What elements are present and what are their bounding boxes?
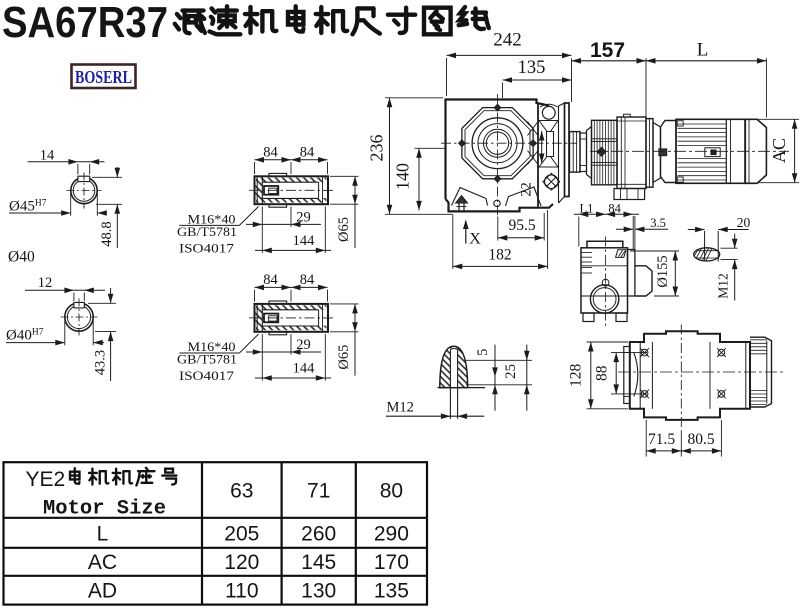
svg-text:120: 120 [224,551,259,574]
svg-text:80.5: 80.5 [687,431,714,448]
svg-text:170: 170 [374,551,409,574]
svg-text:14: 14 [40,148,55,164]
svg-text:Ø155: Ø155 [655,255,671,287]
svg-text:182: 182 [488,247,511,264]
svg-text:205: 205 [224,523,259,546]
svg-text:63: 63 [230,480,253,503]
svg-text:AD: AD [88,580,117,603]
svg-text:AC: AC [769,138,789,163]
svg-text:L: L [697,40,709,61]
svg-text:43.3: 43.3 [92,350,108,375]
svg-text:AC: AC [88,551,117,574]
svg-text:130: 130 [301,580,336,603]
svg-text:80: 80 [380,480,403,503]
svg-text:157: 157 [590,38,625,62]
svg-text:SA67R37: SA67R37 [2,0,168,47]
svg-text:YE2: YE2 [26,468,66,491]
svg-text:110: 110 [225,580,258,603]
svg-text:3.5: 3.5 [650,216,666,230]
svg-text:22: 22 [519,182,535,197]
svg-text:71.5: 71.5 [648,431,675,448]
svg-text:M12: M12 [387,400,414,416]
svg-text:Ø65: Ø65 [336,345,352,370]
svg-text:Ø65: Ø65 [336,217,352,242]
svg-text:84: 84 [300,144,315,160]
svg-text:Motor Size: Motor Size [43,498,166,521]
svg-text:Ø40: Ø40 [8,249,35,266]
svg-text:5: 5 [475,349,491,356]
svg-text:84: 84 [263,144,278,160]
svg-text:71: 71 [307,480,330,503]
svg-text:128: 128 [568,364,585,388]
svg-text:140: 140 [393,163,413,190]
svg-text:84: 84 [263,272,278,288]
svg-text:25: 25 [503,364,519,379]
svg-text:20: 20 [737,215,751,230]
svg-text:260: 260 [301,523,336,546]
svg-text:ISO4017: ISO4017 [179,241,235,256]
svg-text:X: X [469,231,481,248]
svg-text:144: 144 [293,233,316,249]
svg-text:BOSERL: BOSERL [75,67,132,87]
svg-text:236: 236 [367,135,387,162]
svg-text:GB/T5781: GB/T5781 [177,351,237,366]
svg-text:12: 12 [38,275,53,291]
svg-text:242: 242 [493,30,522,51]
svg-text:48.8: 48.8 [99,221,115,246]
svg-text:290: 290 [374,523,409,546]
svg-text:GB/T5781: GB/T5781 [177,224,237,239]
svg-text:88: 88 [594,365,611,381]
svg-text:L: L [97,523,109,546]
svg-text:135: 135 [374,580,409,603]
svg-text:135: 135 [518,58,546,78]
svg-text:95.5: 95.5 [508,217,535,234]
svg-text:ISO4017: ISO4017 [179,368,235,383]
svg-text:M12: M12 [716,273,731,299]
svg-text:144: 144 [293,361,316,377]
svg-text:84: 84 [300,272,315,288]
svg-text:145: 145 [301,551,336,574]
